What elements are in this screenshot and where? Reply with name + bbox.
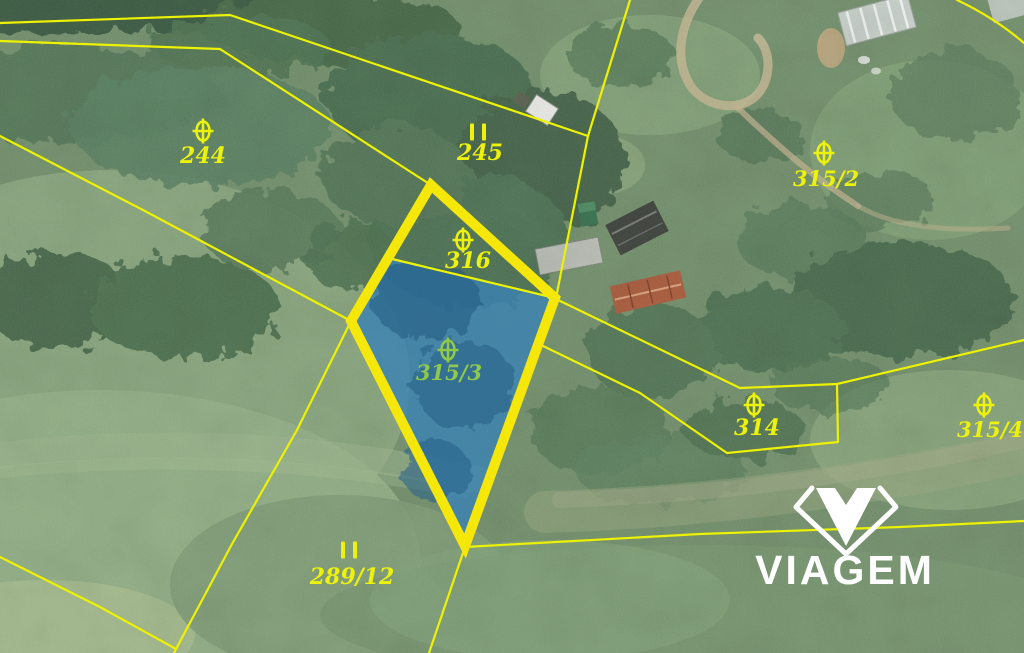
parcel-label-315-3: 315/3 <box>416 360 482 385</box>
cadastral-map-view: 244 245 316 315/2 315/3 314 315/4 289/12… <box>0 0 1024 653</box>
parcel-label-316: 316 <box>445 248 491 274</box>
parcel-label-245: 245 <box>456 140 503 166</box>
viagem-wordmark: VIAGEM <box>755 547 935 593</box>
parcel-label-289-12: 289/12 <box>309 564 395 590</box>
parcel-label-314: 314 <box>734 415 780 441</box>
parcel-label-244: 244 <box>179 143 226 169</box>
parcel-label-315-2: 315/2 <box>793 166 859 191</box>
parcel-label-315-4: 315/4 <box>957 417 1023 442</box>
tree-cluster <box>415 340 515 430</box>
